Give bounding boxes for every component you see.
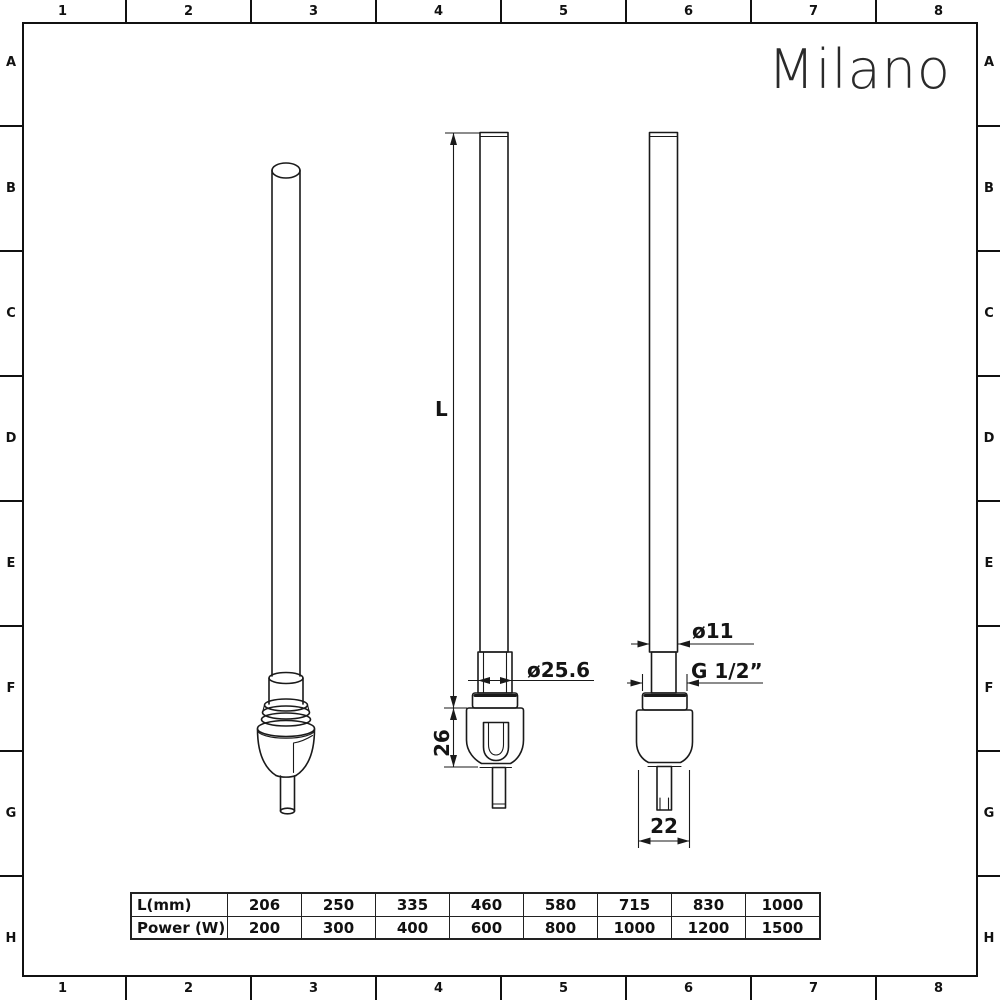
- spec-table-cell: 715: [597, 894, 671, 916]
- spec-table-cell: 1000: [597, 916, 671, 938]
- spec-table-row-header: L(mm): [132, 894, 227, 916]
- dim-nut-diameter-label: ø25.6: [527, 658, 590, 682]
- dimension-nut-diameter: ø25.6: [468, 658, 594, 684]
- spec-table-cell: 1000: [745, 894, 819, 916]
- dim-body-height-label: 26: [430, 729, 454, 757]
- spec-table-row-header: Power (W): [132, 916, 227, 938]
- spec-table-cell: 800: [523, 916, 597, 938]
- spec-table-cell: 1500: [745, 916, 819, 938]
- view-isometric-element: [258, 163, 315, 814]
- spec-table-cell: 200: [227, 916, 301, 938]
- spec-table-cell: 600: [449, 916, 523, 938]
- dimension-length: L: [435, 133, 480, 708]
- dimension-thread: G 1/2”: [627, 659, 763, 691]
- dimension-probe-width: 22: [639, 770, 690, 848]
- dim-thread-label: G 1/2”: [691, 659, 763, 683]
- spec-table-cell: 580: [523, 894, 597, 916]
- spec-table-cell: 300: [301, 916, 375, 938]
- dim-probe-width-label: 22: [650, 814, 678, 838]
- view-front-elevation: [467, 133, 524, 809]
- spec-table-cell: 250: [301, 894, 375, 916]
- spec-table-cell: 460: [449, 894, 523, 916]
- spec-table-cell: 400: [375, 916, 449, 938]
- spec-table-cell: 1200: [671, 916, 745, 938]
- view-side-elevation: [637, 133, 693, 811]
- spec-table-cell: 830: [671, 894, 745, 916]
- dim-tube-diameter-label: ø11: [692, 619, 734, 643]
- dim-length-label: L: [435, 397, 448, 421]
- spec-table: L(mm) 206 250 335 460 580 715 830 1000 P…: [130, 892, 821, 940]
- technical-drawing: L 26 ø25.6: [0, 0, 1000, 1000]
- spec-table-cell: 206: [227, 894, 301, 916]
- engineering-drawing-sheet: 12345678 12345678 ABCDEFGH ABCDEFGH Mila…: [0, 0, 1000, 1000]
- spec-table-cell: 335: [375, 894, 449, 916]
- dimension-body-height: 26: [430, 708, 478, 767]
